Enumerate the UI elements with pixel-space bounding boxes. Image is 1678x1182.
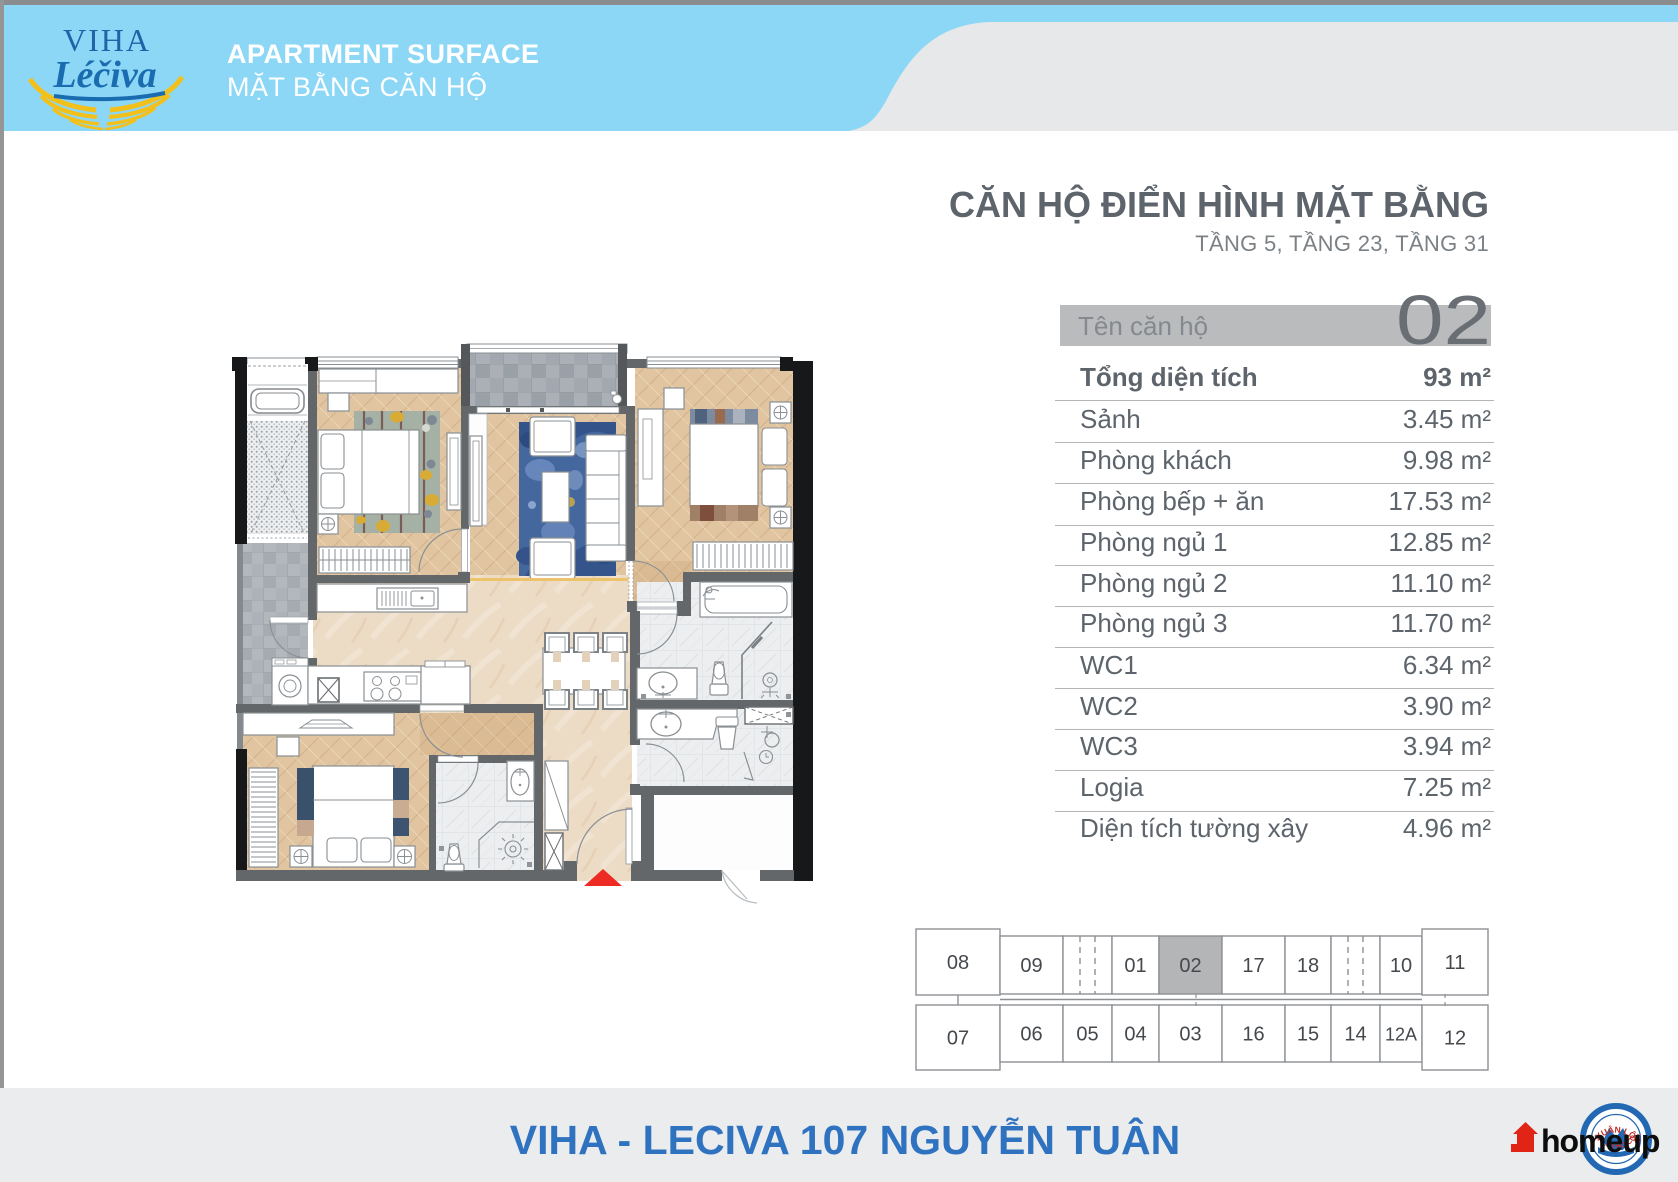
svg-text:09: 09 [1020,955,1042,977]
svg-text:12A: 12A [1385,1025,1417,1045]
svg-text:homeup: homeup [1541,1123,1660,1159]
svg-text:08: 08 [947,952,969,974]
svg-text:11: 11 [1445,952,1466,974]
svg-text:03: 03 [1179,1024,1201,1046]
svg-text:12: 12 [1444,1028,1466,1050]
svg-text:15: 15 [1297,1024,1319,1046]
svg-text:VIHA: VIHA [63,22,151,58]
svg-text:07: 07 [947,1028,969,1050]
svg-text:01: 01 [1124,955,1146,977]
svg-text:02: 02 [1179,955,1201,977]
svg-text:Léčiva: Léčiva [52,54,156,96]
svg-text:06: 06 [1020,1024,1042,1046]
svg-text:17: 17 [1242,955,1264,977]
svg-text:10: 10 [1390,955,1412,977]
svg-text:18: 18 [1297,955,1319,977]
svg-text:05: 05 [1076,1024,1098,1046]
svg-text:04: 04 [1124,1024,1146,1046]
svg-text:14: 14 [1344,1024,1366,1046]
svg-text:16: 16 [1242,1024,1264,1046]
